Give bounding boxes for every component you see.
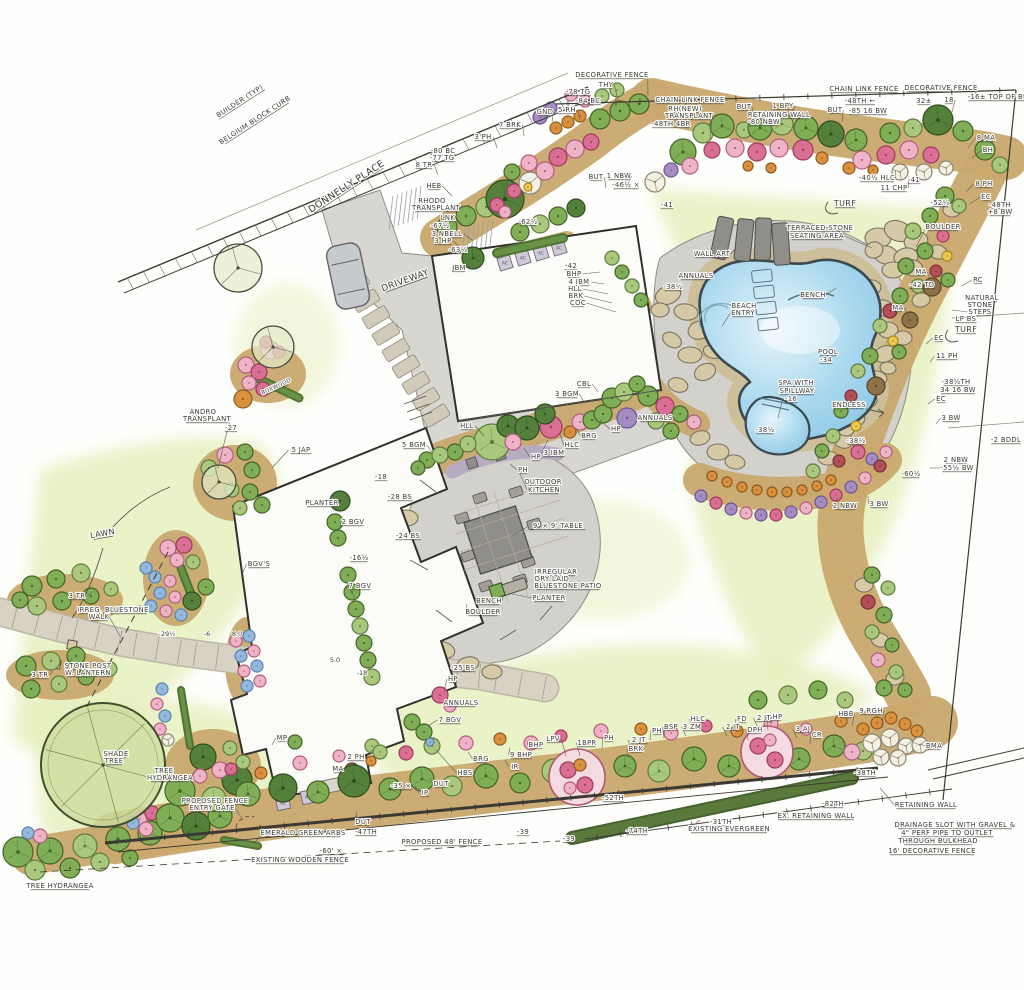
grade-note: -6 bbox=[204, 630, 210, 638]
plan-label: MA bbox=[892, 304, 903, 312]
grade-note: 8.0 bbox=[232, 630, 242, 638]
plan-label: MA bbox=[332, 765, 343, 773]
label-group: -60½ bbox=[901, 470, 920, 478]
label-group: 7 BGV bbox=[439, 716, 462, 724]
plant-center bbox=[705, 725, 707, 727]
plant-center bbox=[242, 761, 244, 763]
plan-label: -38TH bbox=[854, 769, 876, 777]
label-group: ENTRY bbox=[731, 309, 755, 317]
leader-line bbox=[952, 310, 967, 312]
plant-center bbox=[370, 760, 372, 762]
plant-center bbox=[110, 588, 112, 590]
plant-center bbox=[600, 730, 602, 732]
plant-center bbox=[560, 735, 562, 737]
plan-label: BUT bbox=[589, 173, 604, 181]
plant-center bbox=[245, 364, 247, 366]
label-group: HBB bbox=[838, 710, 854, 718]
plan-label: EC bbox=[936, 395, 946, 403]
label-group: -39 bbox=[563, 835, 576, 843]
plan-label: GND bbox=[537, 108, 554, 116]
plant-center bbox=[253, 650, 255, 652]
curb-block bbox=[287, 212, 293, 223]
plan-label: HBS bbox=[457, 769, 472, 777]
label-group: TURF bbox=[954, 325, 977, 334]
plant-center bbox=[159, 592, 161, 594]
label-group: TURF bbox=[833, 199, 856, 208]
plan-label: HYDRANGEA bbox=[147, 774, 193, 782]
plant-center bbox=[145, 567, 147, 569]
plant-center bbox=[557, 215, 559, 217]
plant-center bbox=[504, 211, 506, 213]
plant-center bbox=[747, 165, 749, 167]
plant-center bbox=[885, 451, 887, 453]
plan-label: -52TH bbox=[602, 794, 624, 802]
plant-center bbox=[817, 689, 819, 691]
plant-center bbox=[879, 465, 881, 467]
plant-center bbox=[167, 547, 169, 549]
plan-label: LP BS bbox=[956, 315, 977, 323]
label-group: -62½ bbox=[518, 218, 537, 226]
plant-center bbox=[889, 310, 891, 312]
label-group: 1BPR bbox=[577, 739, 596, 747]
plant-center bbox=[912, 127, 914, 129]
plan-label: -48TH 4BR bbox=[651, 120, 690, 128]
plan-label: EC bbox=[981, 193, 991, 201]
plant-center bbox=[451, 785, 453, 787]
label-group: W. LANTERN bbox=[65, 669, 111, 677]
plant-center bbox=[417, 467, 419, 469]
label-group: ANNUALS bbox=[638, 414, 673, 422]
plant-center bbox=[851, 751, 853, 753]
plant-center bbox=[715, 502, 717, 504]
label-group: DECORATIVE FENCE bbox=[575, 71, 648, 79]
plant-center bbox=[930, 154, 932, 156]
plan-label: ENDLESS bbox=[832, 401, 866, 409]
plant-center bbox=[821, 157, 823, 159]
plant-center bbox=[557, 156, 559, 158]
label-group: BRK bbox=[629, 745, 644, 753]
label-group: SPA WITH bbox=[778, 379, 814, 387]
label-group: 3 IBM bbox=[543, 449, 564, 457]
label-group: DPH bbox=[747, 726, 763, 734]
plan-label: -28 BS bbox=[388, 493, 412, 501]
plan-label: BH bbox=[983, 146, 993, 154]
plan-label: 2 NBW bbox=[833, 502, 857, 510]
plan-label: -35 × bbox=[391, 782, 412, 790]
plant-center bbox=[840, 410, 842, 412]
plant-center bbox=[411, 721, 413, 723]
plan-label: BRG bbox=[581, 432, 597, 440]
stone bbox=[678, 347, 702, 363]
plan-label: HLL bbox=[460, 422, 474, 430]
label-group: -63½ bbox=[448, 246, 467, 254]
plant-center bbox=[239, 507, 241, 509]
plan-label: 3 IBM bbox=[544, 449, 565, 457]
plan-label: EMERALD GREEN ARBS bbox=[260, 829, 345, 837]
plan-label: COC bbox=[570, 299, 586, 307]
plant-center bbox=[39, 835, 41, 837]
plan-label: HLC bbox=[565, 441, 580, 449]
label-group: 2 PH bbox=[347, 753, 364, 761]
label-group: BMA bbox=[926, 742, 942, 750]
curb-block bbox=[255, 225, 261, 236]
plant-center bbox=[367, 659, 369, 661]
fence-tick bbox=[809, 772, 810, 778]
plant-center bbox=[840, 720, 842, 722]
label-group: PROPOSED 48' FENCE bbox=[402, 838, 483, 846]
label-group: TRANSPLANT bbox=[182, 415, 232, 423]
plant-center bbox=[756, 489, 758, 491]
plant-center bbox=[337, 537, 339, 539]
plant-center bbox=[760, 514, 762, 516]
plant-center bbox=[844, 699, 846, 701]
label-group: -41 bbox=[908, 176, 921, 184]
label-group: EC bbox=[934, 334, 944, 342]
plant-center bbox=[850, 395, 852, 397]
plan-label: WALL ART bbox=[694, 250, 731, 258]
ac-pad-label: AC bbox=[502, 261, 508, 267]
plan-label: FD bbox=[737, 715, 747, 723]
label-group: MA bbox=[915, 268, 926, 276]
plan-label: TERRACED STONE bbox=[786, 224, 854, 232]
label-group: KITCHEN bbox=[528, 486, 560, 494]
plant-center bbox=[579, 115, 581, 117]
fence-tick bbox=[858, 799, 859, 805]
plan-label: -42 bbox=[565, 262, 577, 270]
plan-label: -62½ bbox=[518, 218, 537, 226]
plant-center bbox=[726, 481, 728, 483]
plan-label: W. LANTERN bbox=[65, 669, 111, 677]
plant-center bbox=[567, 769, 569, 771]
plant-center bbox=[942, 235, 944, 237]
plant-center bbox=[616, 89, 618, 91]
plant-center bbox=[243, 670, 245, 672]
plant-center bbox=[426, 459, 428, 461]
plan-label: 9' × 9' TABLE bbox=[533, 522, 583, 530]
plant-center bbox=[229, 747, 231, 749]
label-group: -38½ bbox=[663, 283, 682, 291]
fence-tick bbox=[811, 805, 812, 811]
label-group: -84 BC bbox=[575, 97, 600, 105]
plant-center bbox=[544, 413, 546, 415]
label-group: -16± TOP OF BU bbox=[968, 93, 1024, 101]
plan-label: EXISTING WOODEN FENCE bbox=[251, 856, 349, 864]
label-group: 1 NBW bbox=[607, 172, 631, 180]
curb-block bbox=[463, 139, 469, 150]
label-group: HP bbox=[531, 453, 541, 461]
label-group: 3 BW bbox=[941, 414, 960, 422]
boundary-line bbox=[928, 748, 1024, 770]
plant-center bbox=[235, 640, 237, 642]
plant-center bbox=[584, 784, 586, 786]
label-group: 3 HP bbox=[434, 237, 451, 245]
label-group: -47TH bbox=[355, 828, 377, 836]
label-group: 3 TR bbox=[32, 671, 49, 679]
label-group: 1 BPY bbox=[772, 102, 794, 110]
label-group: MP bbox=[277, 734, 288, 742]
plan-label: 32± bbox=[916, 97, 931, 105]
plan-label: 8 PH bbox=[975, 180, 992, 188]
plant-center bbox=[857, 370, 859, 372]
plant-center bbox=[161, 688, 163, 690]
label-group: CHAIN LINK FENCE bbox=[829, 85, 898, 93]
plan-label: TRANSPLANT bbox=[411, 204, 461, 212]
label-group: -80 NBW bbox=[748, 118, 780, 126]
label-group: DECORATIVE FENCE bbox=[904, 84, 977, 92]
plant-center bbox=[774, 759, 776, 761]
plant-center bbox=[258, 371, 260, 373]
plan-label: -16 bbox=[785, 395, 797, 403]
plant-center bbox=[61, 600, 63, 602]
label-group: PH bbox=[652, 727, 662, 735]
plant-center bbox=[745, 512, 747, 514]
label-group: 11 CHP bbox=[881, 184, 908, 192]
label-group: JBM bbox=[451, 264, 466, 272]
plant-center bbox=[513, 190, 515, 192]
plan-label: BENCH bbox=[476, 597, 502, 605]
plan-label: HP bbox=[448, 675, 458, 683]
label-group: -52½ bbox=[930, 199, 949, 207]
plant-center bbox=[889, 132, 891, 134]
plant-center bbox=[757, 745, 759, 747]
label-group: 3 ZM bbox=[683, 723, 701, 731]
plant-center bbox=[958, 205, 960, 207]
label-group: EXISTING EVERGREEN bbox=[688, 825, 770, 833]
plant-center bbox=[575, 207, 577, 209]
label-group: CBL bbox=[577, 380, 591, 388]
label-group: BUT bbox=[737, 103, 752, 111]
grade-note: 5.0 bbox=[330, 656, 340, 664]
plant-center bbox=[465, 742, 467, 744]
plan-label: TURF bbox=[954, 325, 977, 334]
plant-center bbox=[821, 450, 823, 452]
plan-label: -18 bbox=[375, 473, 387, 481]
plant-center bbox=[664, 405, 666, 407]
plant-center bbox=[898, 351, 900, 353]
plant-center bbox=[790, 511, 792, 513]
label-group: SEATING AREA bbox=[790, 232, 844, 240]
plant-center bbox=[769, 739, 771, 741]
plan-label: 2 BGV bbox=[342, 518, 365, 526]
plan-label: -84 BC bbox=[576, 97, 601, 105]
plant-center bbox=[251, 469, 253, 471]
plant-center bbox=[180, 614, 182, 616]
label-group: -85 16 BW bbox=[849, 107, 887, 115]
plant-center bbox=[205, 586, 207, 588]
plan-label: HP bbox=[531, 453, 541, 461]
label-group: -28 BS bbox=[387, 493, 412, 501]
label-group: PH bbox=[604, 734, 614, 742]
plan-label: MP bbox=[277, 734, 288, 742]
label-group: BUT bbox=[828, 106, 843, 114]
plant-center bbox=[579, 421, 581, 423]
plant-center bbox=[230, 768, 232, 770]
plant-center bbox=[371, 745, 373, 747]
plant-center bbox=[174, 596, 176, 598]
label-group: LPV bbox=[546, 735, 560, 743]
curb-block bbox=[207, 245, 213, 256]
plant-center bbox=[885, 154, 887, 156]
stone bbox=[651, 303, 669, 317]
plan-label: KITCHEN bbox=[528, 486, 560, 494]
plan-label: SPA WITH bbox=[778, 379, 814, 387]
label-group: BHP bbox=[529, 741, 544, 749]
plan-label: WALK bbox=[89, 613, 110, 621]
fence-tick bbox=[763, 812, 764, 818]
plan-label: PH bbox=[518, 466, 528, 474]
landscape-plan-drawing: ACACACACACAC-29½-68.05.0-18BUILDER (TYP)… bbox=[0, 0, 1024, 990]
plan-label: 2 NBW bbox=[944, 456, 968, 464]
plant-center bbox=[164, 715, 166, 717]
plant-center bbox=[439, 454, 441, 456]
label-group: DRAINAGE SLOT WITH GRAVEL & bbox=[895, 821, 1016, 829]
plant-center bbox=[248, 382, 250, 384]
plant-center bbox=[857, 451, 859, 453]
plan-label: 7 BGV bbox=[349, 582, 372, 590]
label-group: HP bbox=[448, 675, 458, 683]
label-group: HLC bbox=[565, 441, 580, 449]
plant-center bbox=[539, 223, 541, 225]
plant-center bbox=[741, 486, 743, 488]
plant-center bbox=[623, 391, 625, 393]
plant-center bbox=[786, 491, 788, 493]
plan-label: 7 BRK bbox=[499, 121, 521, 129]
plant-center bbox=[830, 479, 832, 481]
plan-label: -67½ bbox=[430, 222, 449, 230]
plan-label: HLC bbox=[691, 715, 706, 723]
plan-label: BGV'S bbox=[248, 560, 270, 568]
label-group: -67½ bbox=[430, 222, 449, 230]
label-group: -60' × bbox=[318, 847, 343, 855]
plant-center bbox=[19, 599, 21, 601]
label-group: 2 JT bbox=[756, 714, 773, 722]
label-group: CHAIN LINK FENCE bbox=[655, 96, 724, 104]
landscape-plan-canvas: ACACACACACAC-29½-68.05.0-18BUILDER (TYP)… bbox=[0, 0, 1024, 990]
label-group: BENCH bbox=[476, 597, 502, 605]
plant-center bbox=[702, 132, 704, 134]
curb-block bbox=[143, 271, 149, 282]
plant-center bbox=[778, 147, 780, 149]
label-group: LP BS bbox=[955, 315, 976, 323]
curb-block bbox=[399, 165, 405, 176]
label-group: PLANTER bbox=[532, 594, 565, 602]
plant-center bbox=[700, 495, 702, 497]
label-group: 2 NBW bbox=[833, 502, 857, 510]
label-group: -42 bbox=[565, 262, 578, 270]
label-group: EC bbox=[936, 395, 946, 403]
label-group: ANNUALS bbox=[679, 272, 714, 280]
plan-label: -16½ bbox=[349, 554, 368, 562]
plant-center bbox=[929, 215, 931, 217]
plan-label: 16' DECORATIVE FENCE bbox=[888, 847, 975, 855]
plant-center bbox=[371, 676, 373, 678]
label-group: SPILLWAY bbox=[780, 387, 815, 395]
plant-center bbox=[511, 171, 513, 173]
plant-center bbox=[835, 494, 837, 496]
plant-center bbox=[244, 451, 246, 453]
label-group: IR bbox=[511, 763, 519, 771]
plan-label: 2 PH bbox=[347, 753, 364, 761]
plan-label: 3 PH bbox=[474, 133, 491, 141]
plant-center bbox=[855, 425, 857, 427]
plant-center bbox=[259, 680, 261, 682]
plant-center bbox=[405, 752, 407, 754]
plant-center bbox=[862, 728, 864, 730]
label-group: RC bbox=[973, 276, 983, 284]
plant-center bbox=[890, 717, 892, 719]
plan-label: IP bbox=[422, 789, 429, 797]
plan-label: -39 bbox=[517, 828, 529, 836]
label-group: -41 bbox=[661, 201, 674, 209]
plant-center bbox=[924, 250, 926, 252]
label-group: GND bbox=[537, 108, 554, 116]
plant-center bbox=[693, 421, 695, 423]
plan-label: BHP bbox=[529, 741, 544, 749]
label-group: ENDLESS bbox=[832, 401, 866, 409]
plan-label: -80 NBW bbox=[748, 118, 780, 126]
label-group: -25 BS bbox=[450, 664, 475, 672]
label-group: 8 MA bbox=[977, 134, 995, 142]
plant-center bbox=[946, 255, 948, 257]
trunk-dot bbox=[236, 266, 239, 269]
plant-center bbox=[512, 441, 514, 443]
label-group: 2 JT bbox=[725, 723, 742, 731]
label-group: -27 bbox=[225, 424, 238, 432]
curb-block bbox=[383, 172, 389, 183]
plan-label: POOL bbox=[818, 348, 838, 356]
plant-center bbox=[334, 521, 336, 523]
label-group: BLUESTONE PATIO bbox=[534, 582, 601, 590]
plant-center bbox=[30, 688, 32, 690]
plant-center bbox=[801, 489, 803, 491]
plan-label: -60½ bbox=[901, 470, 920, 478]
stone bbox=[707, 444, 729, 460]
label-group: -48TH ← bbox=[845, 97, 876, 105]
plant-center bbox=[347, 574, 349, 576]
plan-label: 1 NBW bbox=[607, 172, 631, 180]
label-group: 5 BGM bbox=[402, 441, 426, 449]
plant-center bbox=[36, 605, 38, 607]
plant-center bbox=[519, 231, 521, 233]
label-group: BOULDER bbox=[465, 608, 500, 616]
plant-center bbox=[242, 398, 244, 400]
label-group: BELGIUM BLOCK CURB bbox=[218, 94, 292, 146]
ac-pad-label: AC bbox=[520, 256, 526, 262]
plan-label: CHAIN LINK FENCE bbox=[655, 96, 724, 104]
plan-label: 34 16 BW bbox=[940, 386, 976, 394]
plan-label: BELGIUM BLOCK CURB bbox=[218, 94, 292, 146]
label-group: PH bbox=[518, 466, 528, 474]
plan-label: SEATING AREA bbox=[790, 232, 844, 240]
plan-label: CHAIN LINK FENCE bbox=[829, 85, 898, 93]
plan-label: HEB bbox=[426, 182, 441, 190]
plant-center bbox=[519, 782, 521, 784]
boundary-line bbox=[948, 422, 1024, 428]
plan-label: MA bbox=[915, 268, 926, 276]
fence-tick bbox=[739, 815, 740, 821]
plant-center bbox=[590, 141, 592, 143]
plant-center bbox=[820, 501, 822, 503]
plan-label: -55½ BW bbox=[940, 464, 973, 472]
plan-label: -48TH ← bbox=[845, 97, 876, 105]
label-group: TREE bbox=[104, 757, 124, 765]
label-group: TRANSPLANT bbox=[411, 204, 461, 212]
plant-center bbox=[775, 514, 777, 516]
plan-label: -42 TD bbox=[910, 281, 935, 289]
plan-label: -34 bbox=[820, 356, 832, 364]
label-group: PLANTER bbox=[305, 499, 338, 507]
label-group: ENTRY GATE bbox=[189, 804, 234, 812]
